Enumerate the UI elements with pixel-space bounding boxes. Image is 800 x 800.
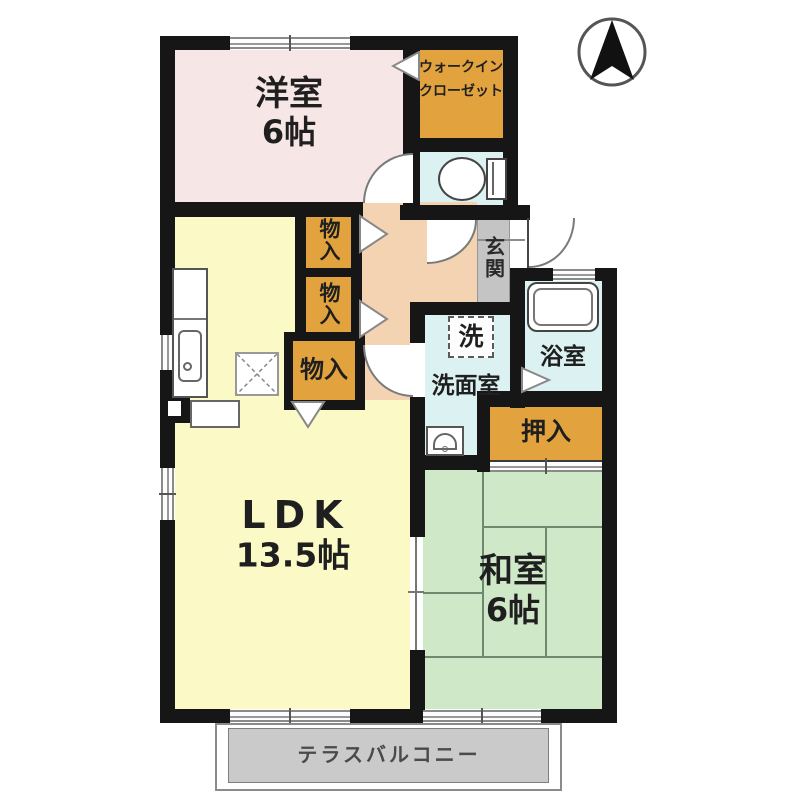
tatami-line-h3 bbox=[423, 592, 482, 594]
toilet-bottom-wall bbox=[400, 205, 530, 220]
japanese-room-label: 和室 bbox=[479, 554, 547, 590]
window-tick bbox=[159, 493, 176, 495]
window-tick bbox=[481, 708, 483, 724]
bottom-wall-left bbox=[160, 709, 230, 723]
triangle-right-icon bbox=[358, 299, 390, 339]
bedroom-top-window bbox=[230, 37, 350, 49]
washroom-left-wall-upper bbox=[410, 302, 425, 343]
counter-divider bbox=[174, 318, 206, 320]
north-arrow-icon bbox=[576, 16, 648, 88]
walk-in-closet-label-line1: ウォークイン bbox=[419, 61, 503, 76]
kitchen-wall-stub-hole bbox=[168, 401, 181, 416]
ldk-balcony-door bbox=[230, 710, 350, 722]
left-wall-lower bbox=[160, 520, 175, 723]
bathroom-window bbox=[553, 269, 595, 280]
bathtub-inner bbox=[533, 288, 593, 326]
ldk-washitsu-sliding-door bbox=[415, 537, 417, 650]
bottom-wall-middle bbox=[350, 709, 423, 723]
walk-in-closet-label-line2: クローゼット bbox=[419, 85, 503, 100]
washroom-label: 洗面室 bbox=[432, 374, 501, 398]
storage3-door-marker bbox=[290, 400, 326, 430]
door-tick bbox=[545, 458, 547, 474]
toilet-bowl-icon bbox=[438, 157, 486, 201]
triangle-left-icon bbox=[391, 51, 421, 81]
closet-bottom-wall bbox=[403, 138, 518, 152]
ldk-size: 13.5帖 bbox=[236, 539, 350, 574]
terrace-balcony-label: テラスバルコニー bbox=[297, 745, 480, 766]
laundry-label: 洗 bbox=[458, 324, 483, 350]
storage2-door-marker bbox=[358, 299, 390, 339]
triangle-right-icon bbox=[520, 366, 552, 394]
japanese-room-balcony-door bbox=[423, 710, 541, 722]
western-room-label: 洋室 bbox=[255, 77, 323, 113]
bedroom-bottom-wall bbox=[160, 202, 363, 217]
right-wall-lower bbox=[602, 268, 617, 723]
japanese-room-size: 6帖 bbox=[486, 594, 540, 628]
kitchen-counter bbox=[172, 268, 208, 398]
triangle-right-icon bbox=[358, 214, 390, 254]
entrance-label: 玄関 bbox=[483, 236, 504, 280]
entry-door-arc bbox=[529, 218, 575, 268]
storage3-label: 物入 bbox=[300, 357, 348, 382]
bathroom-label: 浴室 bbox=[540, 345, 586, 369]
storage1-door-marker bbox=[358, 214, 390, 254]
oshiire-sliding-door bbox=[490, 460, 602, 472]
western-room-size: 6帖 bbox=[262, 116, 316, 150]
washroom-top-wall bbox=[410, 302, 518, 315]
japanese-room-top-wall-left bbox=[477, 460, 490, 472]
top-wall-right bbox=[350, 36, 518, 50]
ldk-label: LDK bbox=[241, 496, 350, 536]
ldk-washitsu-wall-lower bbox=[410, 650, 425, 710]
window-rail bbox=[167, 335, 169, 370]
toilet-tank-line bbox=[492, 162, 494, 195]
washbasin-icon bbox=[426, 426, 464, 456]
ldk-washitsu-sliding-tick bbox=[408, 591, 424, 593]
washroom-left-wall-lower bbox=[410, 397, 425, 455]
window-tick bbox=[289, 35, 291, 51]
oshiire-label: 押入 bbox=[521, 419, 571, 445]
storage2-label: 物入 bbox=[318, 282, 340, 326]
tatami-line-h1 bbox=[482, 526, 602, 528]
window-tick bbox=[289, 708, 291, 724]
tatami-line-h2 bbox=[423, 656, 602, 658]
window-rail bbox=[553, 274, 595, 276]
floor-plan: 洋室 6帖 ウォークイン クローゼット LDK 13.5帖 和室 6帖 玄関 洗… bbox=[0, 0, 800, 800]
cross-hatch-icon bbox=[237, 354, 277, 394]
compass bbox=[576, 16, 648, 88]
kitchen-cabinet bbox=[190, 400, 240, 428]
refrigerator-space bbox=[235, 352, 279, 396]
bathroom-door-marker bbox=[520, 366, 552, 394]
tatami-line-v2 bbox=[545, 527, 547, 658]
kitchen-sink bbox=[178, 330, 202, 382]
storage1-label: 物入 bbox=[318, 218, 340, 262]
bathtub-icon bbox=[527, 282, 599, 332]
ldk-washitsu-wall-upper bbox=[410, 460, 425, 537]
triangle-down-icon bbox=[290, 400, 326, 430]
faucet-icon bbox=[183, 362, 192, 371]
japanese-room-top-wall-right bbox=[602, 460, 617, 472]
bottom-wall-right bbox=[541, 709, 617, 723]
closet-door-marker bbox=[391, 51, 421, 81]
washbasin-drain bbox=[442, 446, 448, 452]
ldk-side-window bbox=[161, 468, 174, 520]
toilet-tank bbox=[486, 158, 507, 200]
